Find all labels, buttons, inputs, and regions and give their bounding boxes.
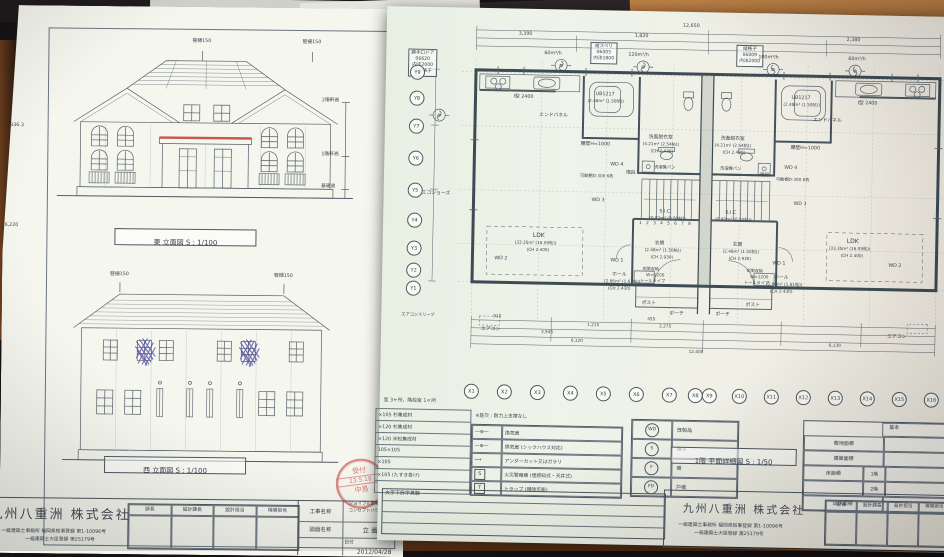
downspout-label: 竪樋150 — [192, 39, 211, 45]
room-label: (2.48m² (1.50帖)) — [645, 248, 682, 254]
grid-bubble-y: Y7 — [409, 119, 424, 134]
grid-bubble-x: X8 — [688, 388, 703, 403]
arrow-icon: ⟶ — [471, 453, 501, 468]
pen-scribble — [135, 338, 259, 366]
dim-text: 2,380 — [847, 38, 861, 44]
elevation-sheet: 竪樋150 竪樋150 6,336.3 6,220 2階軒高 1階軒高 基礎高 … — [0, 5, 409, 557]
door-label: WD 1 — [610, 258, 623, 264]
room-label: (CH 2.400) — [527, 248, 550, 253]
grid-bubble-x: X14 — [860, 391, 875, 406]
equipment-label: エアコンスリーブ — [401, 312, 434, 317]
approval-grid: 部長 設計課長 設計担当 現場担当 — [824, 500, 944, 548]
dim-text: 12,650 — [683, 24, 700, 30]
grid-bubble-y: Y5 — [408, 183, 423, 198]
room-label: ポーチ — [715, 312, 730, 318]
dim-text: 6,120 — [571, 339, 583, 344]
level-value: 6,220 — [5, 223, 19, 229]
west-elevation-drawing — [60, 264, 342, 479]
dim-text: 2,275 — [659, 324, 671, 329]
fan-icon: —⊕— — [472, 439, 502, 454]
room-label: (2.66m² (1.61帖)) — [766, 282, 803, 288]
plan-labels: 12,650 3,390 1,820 2,380 勝手口ドア06620 内法20… — [400, 18, 944, 419]
room-label: ポスト — [642, 301, 657, 307]
dim-text: 1,820 — [635, 34, 649, 40]
door-label: WD 3 — [591, 198, 604, 204]
west-elevation-title: 西 立面図 S : 1/100 — [143, 466, 207, 475]
dim-text: 12,400 — [689, 350, 704, 355]
room-label: (2.48m² (1.50帖)) — [723, 250, 760, 256]
license-line: 一級建築士事務所 福岡県知事登録 第1-10096号 — [678, 523, 783, 531]
grid-bubble-x: X11 — [764, 389, 779, 404]
room-label: UB1217 — [596, 92, 615, 98]
room-label: (4.21m² (2.54帖)) — [643, 142, 680, 148]
east-elevation-drawing — [55, 43, 357, 221]
opening-spec-box: 縦スベリ06005内法1800 — [590, 42, 617, 64]
room-label: S.I.C — [725, 211, 736, 217]
grid-bubble-x: X12 — [796, 390, 811, 405]
airflow-label: 120m³/h — [628, 53, 649, 59]
door-symbol: WD — [645, 423, 659, 437]
room-label: (CH 2.430) — [608, 286, 631, 291]
grid-bubble-x: X13 — [828, 391, 843, 406]
base-height-label: 基礎高 — [321, 184, 335, 190]
room-label: 玄関 — [733, 243, 743, 249]
grid-bubble-x: X5 — [596, 386, 611, 401]
equipment-label: エアコン — [481, 327, 500, 333]
dim-text: 6,130 — [829, 344, 841, 349]
grid-bubble-y: Y4 — [407, 213, 422, 228]
room-label: ポーチ — [669, 312, 684, 318]
door-label: WD 4 — [784, 166, 797, 172]
room-label: ホール — [612, 272, 627, 278]
room-label: (CH 2.430) — [770, 289, 793, 294]
grid-bubble-y: Y9 — [410, 65, 425, 80]
grid-bubble-x: X16 — [924, 392, 939, 407]
eave2-label: 2階軒高 — [322, 98, 340, 104]
airflow-label: 100m³/h — [758, 55, 779, 61]
title-block: 九州八重洲 株式会社 一級建築士事務所 福岡県知事登録 第1-10096号 一級… — [663, 490, 944, 554]
room-label: (33.35m² (16.09帖)) — [829, 247, 871, 253]
grid-bubble-x: X9 — [702, 388, 717, 403]
room-label: 腰壁H=1000 — [581, 142, 611, 148]
project-name-line: ジョイフル新築 — [349, 502, 380, 507]
room-label: 洗濯機パン — [720, 167, 741, 172]
room-label: UB1217 — [791, 96, 810, 102]
room-label: トールタイプ — [640, 279, 665, 284]
grid-bubble-y: Y1 — [406, 281, 421, 296]
downspout-label: 竪樋150 — [302, 40, 321, 46]
materials-table: ×105 杉集成材 ×120 杉集成材 ×120 米松集成材 105×105 ×… — [374, 408, 472, 495]
license-line: 一級建築士事務所 福岡県知事登録 第1-10096号 — [1, 529, 106, 536]
grid-bubble-x: X7 — [662, 387, 677, 402]
room-label: (CH 2.930) — [650, 255, 673, 260]
door-label: WD 4 — [610, 162, 623, 168]
west-elevation-title-box: 西 立面図 S : 1/100 — [104, 456, 246, 474]
grid-bubble-y: Y3 — [406, 241, 421, 256]
room-label: 可動棚D-300 6枚 — [580, 174, 614, 179]
dim-text: 3,945 — [541, 330, 553, 335]
fan-icon: —⊕— — [472, 425, 502, 440]
downspout-label: 竪樋150 — [110, 272, 129, 278]
room-label: (2.48m² (1.50帖)) — [587, 99, 624, 105]
company-name: 九州八重洲 株式会社 — [0, 508, 131, 524]
room-label: ポスト — [746, 303, 761, 309]
dim-text: 3,390 — [519, 32, 533, 38]
vent-legend: —⊕—換気扇 —⊕—換気扇 (シックハウス対応) ⟶アンダーカット又はガラリ S… — [470, 424, 623, 499]
door-label: WD 1 — [772, 262, 785, 268]
grid-bubble-x: X10 — [732, 389, 747, 404]
alarm-symbol: S — [474, 468, 485, 479]
room-label: トールタイプ — [744, 281, 769, 286]
room-label: 階段 — [626, 171, 636, 177]
room-label: 腰壁H=1000 — [791, 146, 821, 152]
room-label: 洗濯機パン — [654, 165, 675, 170]
room-label: 階段 — [760, 173, 770, 179]
license-line: 一級建築士大臣登録 第25179号 — [25, 537, 95, 543]
room-label: (CH 2.430) — [650, 149, 673, 154]
downspout-label: 竪樋150 — [274, 274, 293, 280]
room-label: ホール — [774, 276, 789, 282]
room-label: (CH 2.430) — [722, 151, 745, 156]
room-label: エンドパネル — [813, 118, 842, 124]
room-label: 玄関 — [655, 241, 665, 247]
company-name: 九州八重洲 株式会社 — [683, 503, 806, 518]
grid-bubble-x: X4 — [563, 386, 578, 401]
equipment-label: エコジョーズ — [422, 191, 451, 197]
grid-bubble-x: X3 — [530, 385, 545, 400]
door-label: WD 2 — [494, 256, 507, 262]
room-label: (CH 2.930) — [728, 257, 751, 262]
license-line: 一級建築士大臣登録 第25179号 — [694, 531, 764, 538]
title-block: 九州八重洲 株式会社 一級建築士事務所 福岡県知事登録 第1-10096号 一級… — [0, 497, 404, 556]
grid-bubble-x: X2 — [497, 384, 512, 399]
room-label: (0.82m² (0.50帖)) — [715, 217, 752, 223]
room-label: S.I.C — [659, 209, 670, 215]
room-label: エンドパネル — [539, 113, 568, 119]
plan-title-box: 1階 平面詳細図 S : 1/50 — [671, 447, 797, 466]
plan-title: 1階 平面詳細図 S : 1/50 — [695, 457, 773, 466]
brace-note: ※筋交 : 耐力上支障なし — [475, 414, 527, 421]
airflow-label: 60m³/h — [544, 51, 561, 57]
room-label: (2.66m² (1.61帖)) — [604, 279, 641, 285]
door-symbol: S — [645, 442, 659, 456]
room-label: (33.35m² (16.09帖)) — [515, 241, 557, 247]
grid-bubble-x: X6 — [629, 387, 644, 402]
materials-note: 室 3ヶ所、階段室 1ヶ所 — [384, 398, 436, 405]
door-label: WD 2 — [888, 264, 901, 270]
room-label: (2.48m² (1.50帖)) — [783, 103, 820, 109]
grid-bubble-y: Y6 — [408, 151, 423, 166]
dim-text: 910 — [493, 314, 501, 319]
east-elevation-title: 東 立面図 S : 1/100 — [153, 238, 217, 247]
room-label: (4.21m² (2.54帖)) — [715, 143, 752, 149]
grid-bubble-y: Y2 — [406, 263, 421, 278]
east-elevation-title-box: 東 立面図 S : 1/100 — [114, 228, 256, 246]
stair-numbers: 1 2 3 4 5 6 7 8 — [639, 221, 692, 227]
grid-bubble-x: X1 — [464, 384, 479, 399]
approval-grid: 部長 設計課長 設計担当 現場担当 — [127, 503, 299, 551]
room-label: 洗面脱衣室 — [721, 137, 745, 143]
grid-bubble-y: Y8 — [409, 91, 424, 106]
floor-plan-sheet: 12,650 3,390 1,820 2,380 勝手口ドア06620 内法20… — [377, 6, 944, 551]
door-symbol: F — [644, 461, 658, 475]
dim-text: 1,215 — [587, 323, 599, 328]
grid-bubble-x: X15 — [892, 392, 907, 407]
door-symbol: FD — [644, 480, 658, 494]
dim-text: 455 — [647, 317, 655, 322]
room-label: (CH 2.400) — [840, 254, 863, 259]
equipment-label: エアコン — [887, 335, 906, 341]
room-label: 可動棚D-300 6枚 — [776, 178, 810, 183]
door-label: WD 3 — [793, 202, 806, 208]
room-label: I型 2400 — [513, 95, 533, 101]
room-label: I型 2400 — [857, 101, 877, 107]
airflow-label: 60m³/h — [848, 57, 865, 63]
eave1-label: 1階軒高 — [321, 152, 339, 158]
notes-table: 大字下府字真験 — [381, 488, 666, 539]
